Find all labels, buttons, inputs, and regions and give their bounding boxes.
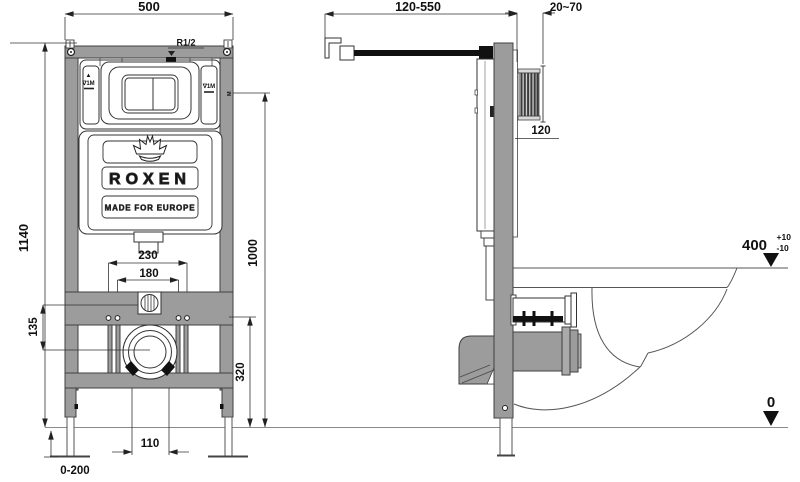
drain-opening [123, 325, 177, 379]
frame-post-side [494, 43, 513, 418]
dim-bowl-tol-up: +10 [777, 232, 792, 242]
side-view: 120-550 20~70 120 400 +10 -10 0 [325, 0, 791, 456]
flush-buttons[interactable] [125, 78, 175, 110]
level-mark-left-label: ∇1M [81, 80, 94, 87]
dim-bowl-height: 400 [742, 237, 767, 254]
level-arrow: ▲ [86, 73, 92, 79]
dim-floor-level: 0 [767, 394, 775, 411]
flush-shaft-corrugation [518, 66, 546, 122]
frame-right-leg [222, 388, 233, 417]
dim-wall-gap: 20~70 [550, 2, 582, 14]
datum-triangle-400 [763, 253, 779, 267]
drawing-canvas: ▲ ∇1M ∇1M M ROXEN MADE FOR EUROPE [0, 0, 800, 482]
rod-clamp [479, 46, 493, 60]
floor-level-marker: 0 [763, 394, 779, 426]
dim-height: 1140 [16, 224, 31, 252]
front-plate [513, 50, 518, 237]
post-foot [500, 418, 512, 455]
dim-width: 500 [138, 0, 160, 14]
brand-panel: ROXEN MADE FOR EUROPE [79, 131, 222, 234]
dim-rod-range: 120-550 [395, 0, 441, 14]
water-connector [138, 292, 161, 314]
rod-end-fitting [340, 46, 354, 60]
meter-mark: M [227, 91, 233, 96]
frame-top-bar [65, 46, 233, 58]
dim-stud-outer: 230 [138, 250, 157, 262]
bowl-height-marker: 400 +10 -10 [742, 232, 791, 267]
front-view: ▲ ∇1M ∇1M M ROXEN MADE FOR EUROPE [10, 0, 270, 477]
technical-drawing: ▲ ∇1M ∇1M M ROXEN MADE FOR EUROPE [0, 0, 800, 482]
post-screw [503, 406, 508, 411]
plate-trim-right [201, 66, 217, 124]
dim-fixing-height: 320 [235, 362, 247, 381]
support-rod [354, 50, 480, 56]
dim-depth: 120 [531, 125, 550, 137]
frame-left-leg [65, 388, 76, 417]
label-inlet-thread: R1/2 [176, 38, 195, 48]
drain-pipe-side [513, 327, 581, 375]
dim-feet: 0-200 [60, 465, 89, 477]
dim-plate-height: 1000 [246, 239, 260, 267]
wall-bracket [325, 38, 493, 60]
drain-elbow [459, 336, 497, 384]
brand-name: ROXEN [109, 171, 191, 188]
flush-pipe-side [511, 293, 577, 327]
datum-triangle-0 [763, 411, 779, 426]
dim-outlet: 110 [141, 438, 160, 450]
dim-bowl-tol-down: -10 [777, 243, 790, 253]
brand-tagline: MADE FOR EUROPE [105, 204, 196, 213]
dim-inlet-to-drain: 135 [28, 317, 40, 337]
dim-stud-inner: 180 [139, 268, 158, 280]
level-mark-right-label: ∇1M [202, 83, 215, 90]
frame-left-rail [65, 58, 78, 390]
